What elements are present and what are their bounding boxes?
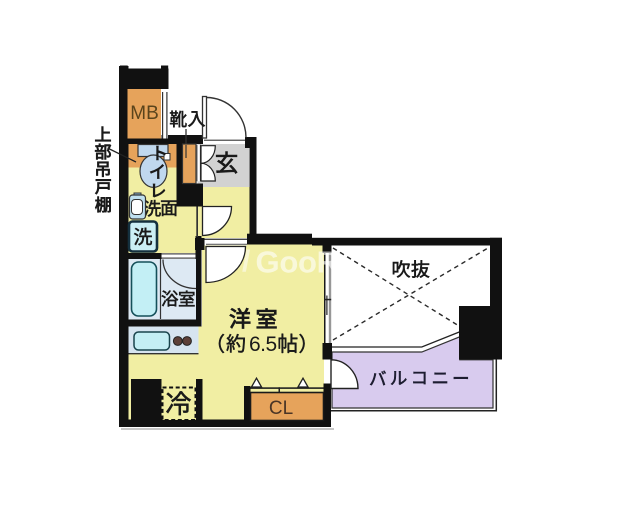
svg-text:CL: CL (269, 398, 293, 419)
svg-text:/: / (242, 245, 251, 278)
svg-text:GooR: GooR (256, 245, 339, 280)
svg-text:6.5: 6.5 (249, 333, 277, 356)
svg-text:MB: MB (130, 103, 159, 124)
